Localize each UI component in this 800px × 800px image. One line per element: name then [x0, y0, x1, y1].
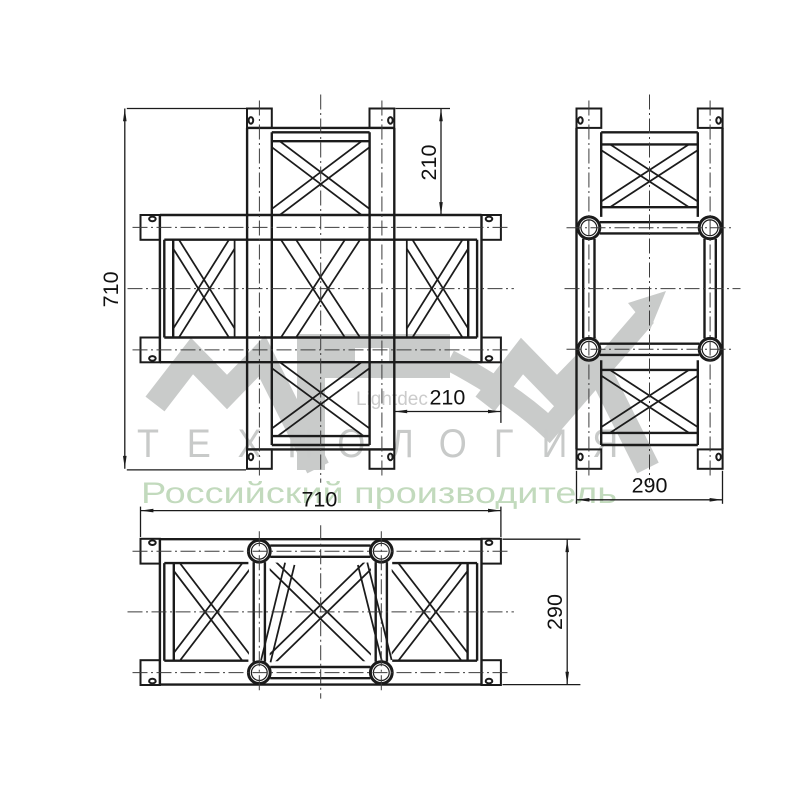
- svg-text:290: 290: [632, 474, 668, 498]
- svg-text:710: 710: [99, 271, 123, 307]
- svg-text:Е: Е: [187, 422, 211, 466]
- svg-text:И: И: [541, 422, 567, 466]
- svg-text:290: 290: [543, 594, 567, 630]
- svg-text:Г: Г: [494, 422, 513, 466]
- svg-text:Lightdec: Lightdec: [356, 389, 428, 410]
- svg-text:Российский производитель: Российский производитель: [141, 477, 617, 510]
- svg-text:210: 210: [417, 145, 441, 181]
- svg-text:Т: Т: [137, 422, 159, 466]
- svg-text:О: О: [439, 422, 467, 466]
- svg-text:710: 710: [301, 488, 337, 512]
- svg-text:210: 210: [429, 386, 465, 410]
